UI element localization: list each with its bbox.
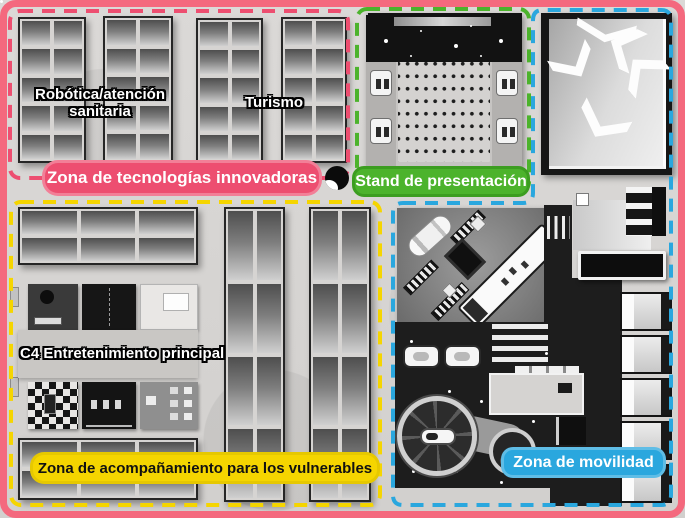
booth-cell	[138, 18, 171, 47]
crosswalk	[547, 216, 570, 239]
autonomous-pod	[403, 345, 440, 368]
dark-room	[82, 284, 136, 330]
audience-seats	[398, 62, 490, 162]
booth-cell	[79, 236, 138, 263]
vehicle-demo-floor	[397, 208, 553, 330]
marker-icon	[325, 166, 349, 190]
seat-grid	[184, 387, 192, 394]
booth-block	[18, 207, 198, 265]
shelf-side-panel	[652, 187, 666, 236]
booth-cell	[105, 47, 138, 76]
booth-cell	[198, 20, 230, 48]
escalator	[403, 259, 439, 295]
bus-vents	[501, 277, 509, 285]
sofa	[163, 293, 189, 311]
zone-label-presentation: Stand de presentación	[352, 166, 530, 197]
booth-cell	[20, 19, 52, 47]
crosswalk	[492, 324, 548, 368]
shelf-bar	[515, 366, 579, 373]
music-room	[28, 284, 78, 330]
booth-cell	[283, 19, 314, 47]
booth-cell	[226, 355, 255, 428]
booth-cell	[20, 209, 79, 236]
zone-label-companion: Zona de acompañamiento para los vulnerab…	[30, 452, 380, 484]
demo-pod	[370, 118, 392, 144]
booth-cell	[340, 282, 369, 355]
booth-cell	[340, 209, 369, 282]
booth-cell	[20, 236, 79, 263]
booth-cell	[230, 48, 262, 76]
office-floor	[549, 19, 666, 169]
booth-block	[196, 18, 263, 163]
booth-cell	[105, 18, 138, 47]
console	[34, 317, 62, 325]
arcade-machine	[44, 394, 56, 414]
presentation-stand	[366, 13, 522, 166]
booth-cell	[52, 19, 84, 47]
checker-floor-room	[28, 382, 78, 429]
booth-cell	[230, 133, 262, 161]
room-divider	[109, 288, 110, 326]
lounge-room	[140, 284, 198, 330]
forklift	[444, 238, 486, 280]
booth-cell	[198, 48, 230, 76]
mobility-booth-room	[489, 373, 584, 415]
booth-cell	[314, 76, 345, 104]
floor-lights	[0, 0, 3, 3]
booth-block	[281, 17, 347, 163]
booth-cell	[198, 76, 230, 104]
booth-cell	[137, 236, 196, 263]
booth-cell	[230, 20, 262, 48]
demo-pod	[370, 70, 392, 96]
booth-cell	[311, 355, 340, 428]
bar-taps	[91, 400, 127, 409]
booth-cell	[105, 132, 138, 161]
door-stub	[10, 287, 19, 307]
booth-cell	[137, 209, 196, 236]
charging-station	[556, 417, 586, 445]
turntable	[40, 290, 54, 304]
zone-label-mobility: Zona de movilidad	[501, 447, 666, 478]
door-stub	[10, 377, 19, 397]
autonomous-pod	[444, 345, 481, 368]
booth-cell	[226, 282, 255, 355]
booth-cell	[255, 355, 284, 428]
mobility-door	[576, 193, 589, 206]
booth-cell	[255, 209, 284, 282]
bar-edge	[86, 425, 132, 427]
booth-cell	[311, 282, 340, 355]
booth-cell	[52, 47, 84, 75]
demo-pod	[496, 70, 518, 96]
booth-cell	[283, 133, 314, 161]
area-label-robotics-health: Robótica/atención sanitaria	[25, 86, 175, 121]
display-case	[578, 251, 666, 280]
booth-cell	[226, 209, 255, 282]
booth-cell	[79, 209, 138, 236]
booth-cell	[20, 47, 52, 75]
mobility-booth	[620, 292, 672, 331]
bar-counter	[82, 382, 136, 429]
stage-screen	[394, 17, 491, 26]
booth-cell	[314, 133, 345, 161]
booth-cell	[138, 47, 171, 76]
booth-cell	[52, 133, 84, 161]
bus-windshield	[463, 298, 488, 323]
booth-cell	[198, 105, 230, 133]
stage	[366, 13, 522, 62]
booth-cell	[283, 47, 314, 75]
booth-cell	[20, 133, 52, 161]
zone-label-innovative-tech: Zona de tecnologías innovadoras	[42, 160, 322, 196]
mobility-booth	[620, 378, 672, 417]
mobility-booth	[620, 335, 672, 374]
stage-lights	[366, 13, 368, 15]
booth-cell	[311, 209, 340, 282]
booth-cell	[198, 133, 230, 161]
display-shelves	[626, 187, 654, 236]
exhibition-floor-map: Robótica/atención sanitaria Turismo	[0, 0, 685, 518]
booth-cell	[314, 47, 345, 75]
booth-cell	[314, 104, 345, 132]
workbench	[146, 396, 156, 405]
booth-cell	[340, 355, 369, 428]
booth-cell	[314, 19, 345, 47]
booth-cell	[255, 282, 284, 355]
demo-pod	[496, 118, 518, 144]
area-label-main-entertainment: C4 Entretenimiento principal	[20, 345, 250, 362]
workshop-room	[140, 382, 198, 429]
area-label-tourism: Turismo	[231, 94, 317, 111]
booth-cell	[138, 132, 171, 161]
track-vehicle	[420, 428, 456, 445]
